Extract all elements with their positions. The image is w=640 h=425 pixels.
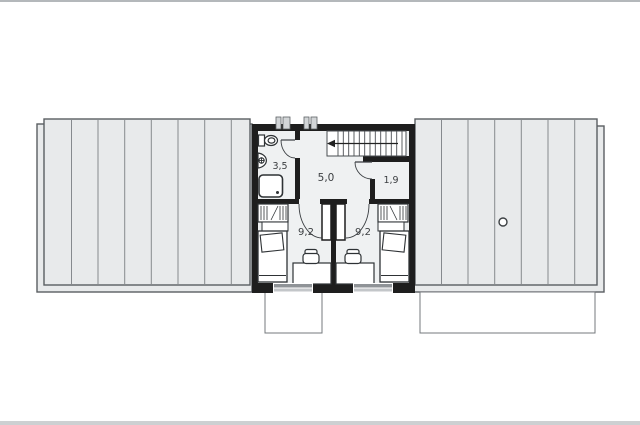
wall-bottom-seg1 [252,283,273,293]
closet-area-label: 1,9 [383,175,398,186]
bedroom-left-door-leaf [322,204,331,240]
window-bedroom-left [273,283,313,293]
window-bedroom-right [353,283,393,293]
floor-plan-canvas: 3,5 5,0 1,9 9,2 9,2 [0,0,640,425]
closet-left-wall [370,179,375,199]
bed-right-symbol [380,231,409,282]
floor-plan-page: 3,5 5,0 1,9 9,2 9,2 [0,0,640,425]
stairs [327,131,406,156]
lower-dormer-outline-right [420,292,595,333]
bathroom-partition-upper [295,131,300,140]
bedroom-left-area-label: 9,2 [298,227,314,238]
central-block: 3,5 5,0 1,9 9,2 9,2 [252,117,415,293]
bedroom-right-area-label: 9,2 [355,227,371,238]
bedroom-right-door-leaf [336,204,345,240]
bathroom-partition-lower [295,158,300,199]
left-roof-surface [44,119,250,285]
bed-left-symbol [258,231,287,282]
right-roof [413,119,604,292]
wardrobe-left-symbol [258,204,288,231]
bathroom-area-label: 3,5 [272,161,287,172]
hall-area-label: 5,0 [318,172,335,184]
left-roof [37,119,252,292]
wall-right [409,124,415,293]
chair-left-symbol [303,250,319,264]
chair-right-symbol [345,250,361,264]
hall-south-wall-left [257,199,299,204]
desk-left-symbol [293,263,331,284]
top-border-line [0,0,640,2]
desk-right-symbol [336,263,374,284]
wall-left [252,124,258,293]
wardrobe-right-symbol [378,204,408,231]
right-roof-surface [415,119,597,285]
lower-dormer-outline-left [265,292,322,333]
toilet-symbol [259,135,278,146]
wall-bottom-seg3 [393,283,415,293]
roof-vent-icon [499,218,507,226]
shower-tray-symbol [259,175,283,197]
hall-south-wall-right [369,199,409,204]
stairs-bottom-wall [363,156,409,162]
bottom-border-line [0,421,640,425]
